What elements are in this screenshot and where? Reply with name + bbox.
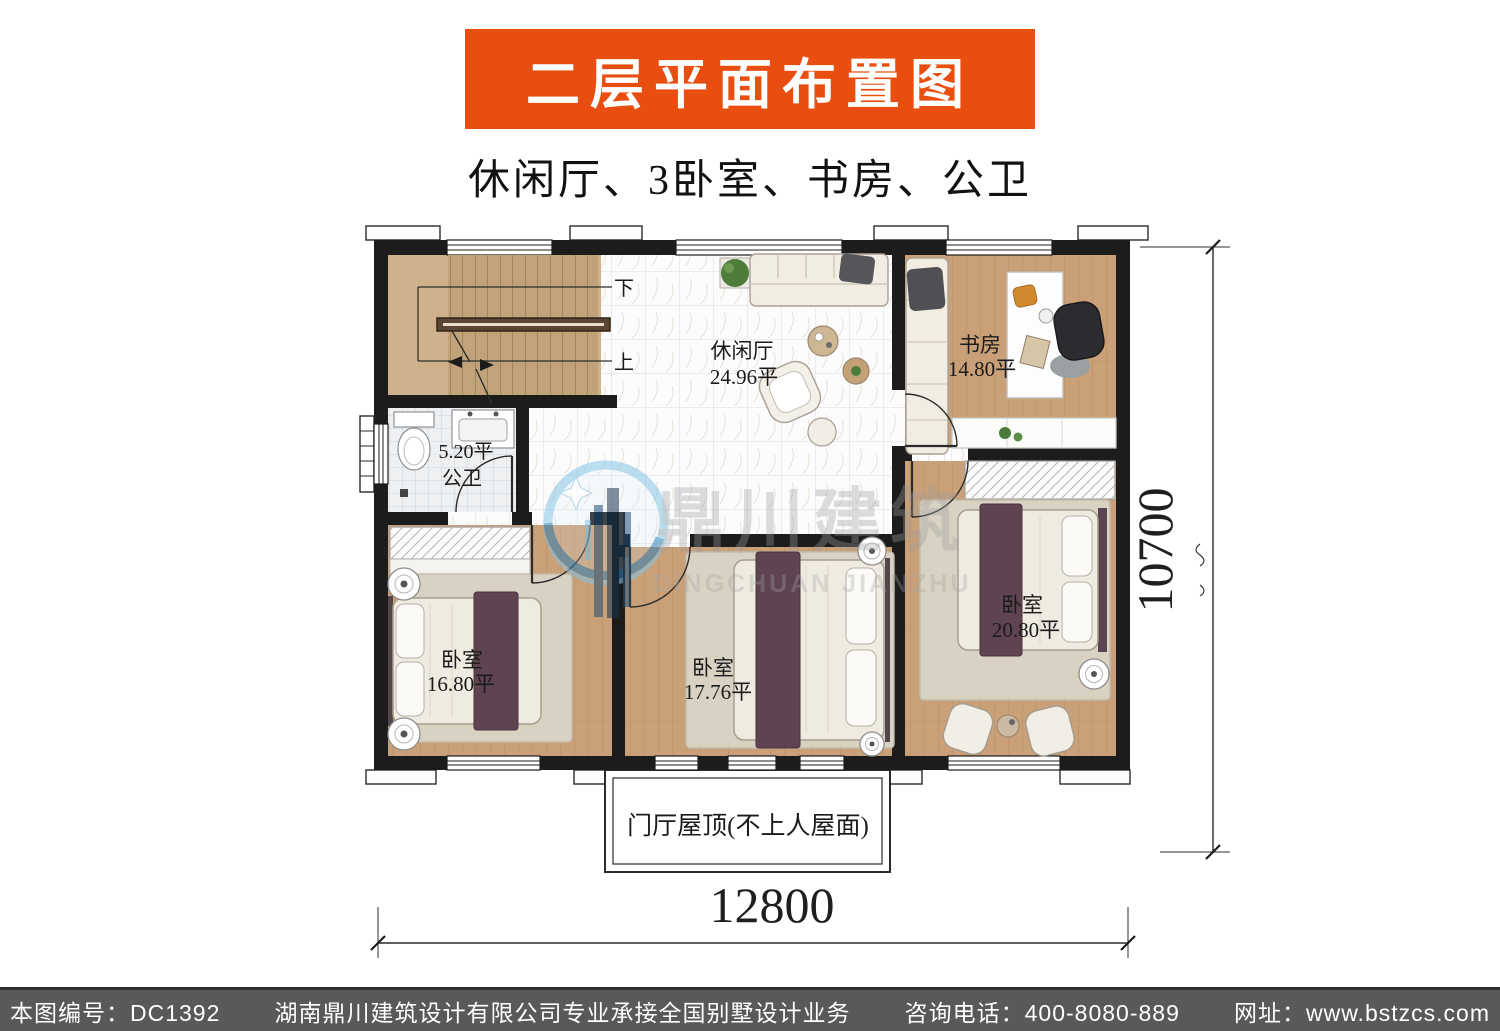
bed-headboard bbox=[1098, 508, 1107, 652]
room-label-study-area: 14.80平 bbox=[948, 357, 1016, 381]
desk-chair-small bbox=[1012, 284, 1038, 308]
watermark: 鼎川建筑 DINGCHUAN JIANZHU bbox=[548, 465, 972, 618]
window bbox=[800, 756, 844, 770]
window bbox=[676, 240, 842, 255]
window bbox=[447, 756, 540, 770]
room-label-bedleft-area: 16.80平 bbox=[427, 672, 495, 696]
room-label-leisure-area: 24.96平 bbox=[710, 365, 778, 389]
room-label-study-name: 书房 bbox=[959, 333, 1001, 357]
window-louver bbox=[360, 416, 374, 492]
parapet-tab bbox=[366, 226, 440, 240]
room-label-bath-area: 5.20平 bbox=[439, 441, 494, 463]
wall-segment bbox=[512, 512, 532, 525]
toilet-tank bbox=[394, 412, 434, 427]
bedside-lamp bbox=[388, 568, 420, 600]
stair-down-label: 下 bbox=[614, 278, 634, 300]
toilet-bowl bbox=[398, 428, 430, 470]
cabinet-plant bbox=[1014, 433, 1023, 442]
cabinet-plant bbox=[999, 427, 1011, 439]
ottoman bbox=[808, 418, 836, 446]
room-label-bedmid-area: 17.76平 bbox=[684, 680, 752, 704]
parapet-tab bbox=[874, 226, 948, 240]
wardrobe-hatch bbox=[965, 461, 1115, 499]
table-item bbox=[1009, 719, 1015, 725]
table-item bbox=[815, 333, 823, 341]
window bbox=[374, 424, 388, 484]
wall-left bbox=[374, 240, 388, 770]
room-label-bedright-area: 20.80平 bbox=[992, 618, 1060, 642]
window bbox=[948, 756, 1060, 770]
footer-website: 网址：www.bstzcs.com bbox=[1234, 994, 1490, 1028]
pillow bbox=[1062, 582, 1092, 642]
sofa-dark-cushion bbox=[838, 253, 875, 285]
plant bbox=[721, 259, 749, 287]
pillow bbox=[396, 662, 424, 716]
room-label-bath-name: 公卫 bbox=[442, 468, 482, 490]
wall-segment bbox=[968, 448, 1130, 461]
desk-lamp bbox=[1039, 309, 1053, 323]
parapet-tab bbox=[366, 770, 436, 784]
dimension-right: 10700 bbox=[1127, 240, 1230, 859]
table-item bbox=[826, 342, 832, 348]
watermark-cn: 鼎川建筑 bbox=[656, 482, 968, 560]
room-label-bedright-name: 卧室 bbox=[1001, 593, 1043, 617]
pillow bbox=[396, 604, 424, 658]
wall-segment bbox=[374, 512, 448, 525]
dimension-break-marks bbox=[1196, 544, 1204, 596]
window bbox=[728, 756, 776, 770]
faucet bbox=[494, 412, 499, 417]
bedside-lamp bbox=[860, 732, 884, 756]
room-label-bedmid-name: 卧室 bbox=[692, 656, 734, 680]
wardrobe-hatch bbox=[390, 527, 530, 559]
watermark-en: DINGCHUAN JIANZHU bbox=[652, 570, 971, 598]
footer-phone: 咨询电话：400-8080-889 bbox=[905, 994, 1180, 1028]
plant-leaf bbox=[724, 263, 734, 273]
pillow bbox=[846, 650, 876, 726]
bedside-lamp bbox=[388, 718, 420, 750]
dimension-width-label: 12800 bbox=[710, 877, 835, 933]
bedside-lamp bbox=[1079, 659, 1109, 689]
parapet-tab bbox=[570, 226, 642, 240]
sink-basin bbox=[459, 419, 507, 441]
floor-plan-canvas: 门厅屋顶(不上人屋面) bbox=[0, 0, 1500, 1031]
room-label-bedleft-name: 卧室 bbox=[441, 648, 483, 672]
window bbox=[655, 756, 698, 770]
porch-roof: 门厅屋顶(不上人屋面) bbox=[605, 770, 890, 872]
stair-up-label: 上 bbox=[614, 351, 634, 374]
room-label-leisure-name: 休闲厅 bbox=[711, 339, 774, 363]
dimension-depth-label: 10700 bbox=[1127, 488, 1183, 613]
pillow bbox=[1062, 516, 1092, 576]
footer-company: 湖南鼎川建筑设计有限公司专业承接全国别墅设计业务 bbox=[275, 994, 851, 1028]
side-table bbox=[997, 715, 1019, 737]
small-plant bbox=[851, 366, 861, 376]
poster-page: 二层平面布置图 休闲厅、3卧室、书房、公卫 bbox=[0, 0, 1500, 1031]
low-cabinet bbox=[952, 418, 1116, 448]
parapet-tab bbox=[1078, 226, 1148, 240]
dimension-bottom: 12800 bbox=[371, 877, 1135, 958]
daybed-dark-cushion bbox=[906, 267, 946, 312]
wall-segment bbox=[892, 240, 905, 390]
wall-bath-right bbox=[516, 395, 529, 525]
faucet bbox=[468, 412, 473, 417]
window bbox=[447, 240, 552, 255]
footer-drawing-no: 本图编号：DC1392 bbox=[10, 994, 220, 1028]
parapet-tab bbox=[1060, 770, 1130, 784]
window bbox=[946, 240, 1052, 255]
floor-drain bbox=[400, 489, 408, 497]
wall-stair-bottom bbox=[374, 395, 617, 408]
footer-bar: 本图编号：DC1392 湖南鼎川建筑设计有限公司专业承接全国别墅设计业务 咨询电… bbox=[0, 987, 1500, 1031]
porch-roof-label: 门厅屋顶(不上人屋面) bbox=[627, 812, 869, 840]
coffee-table bbox=[808, 326, 838, 356]
